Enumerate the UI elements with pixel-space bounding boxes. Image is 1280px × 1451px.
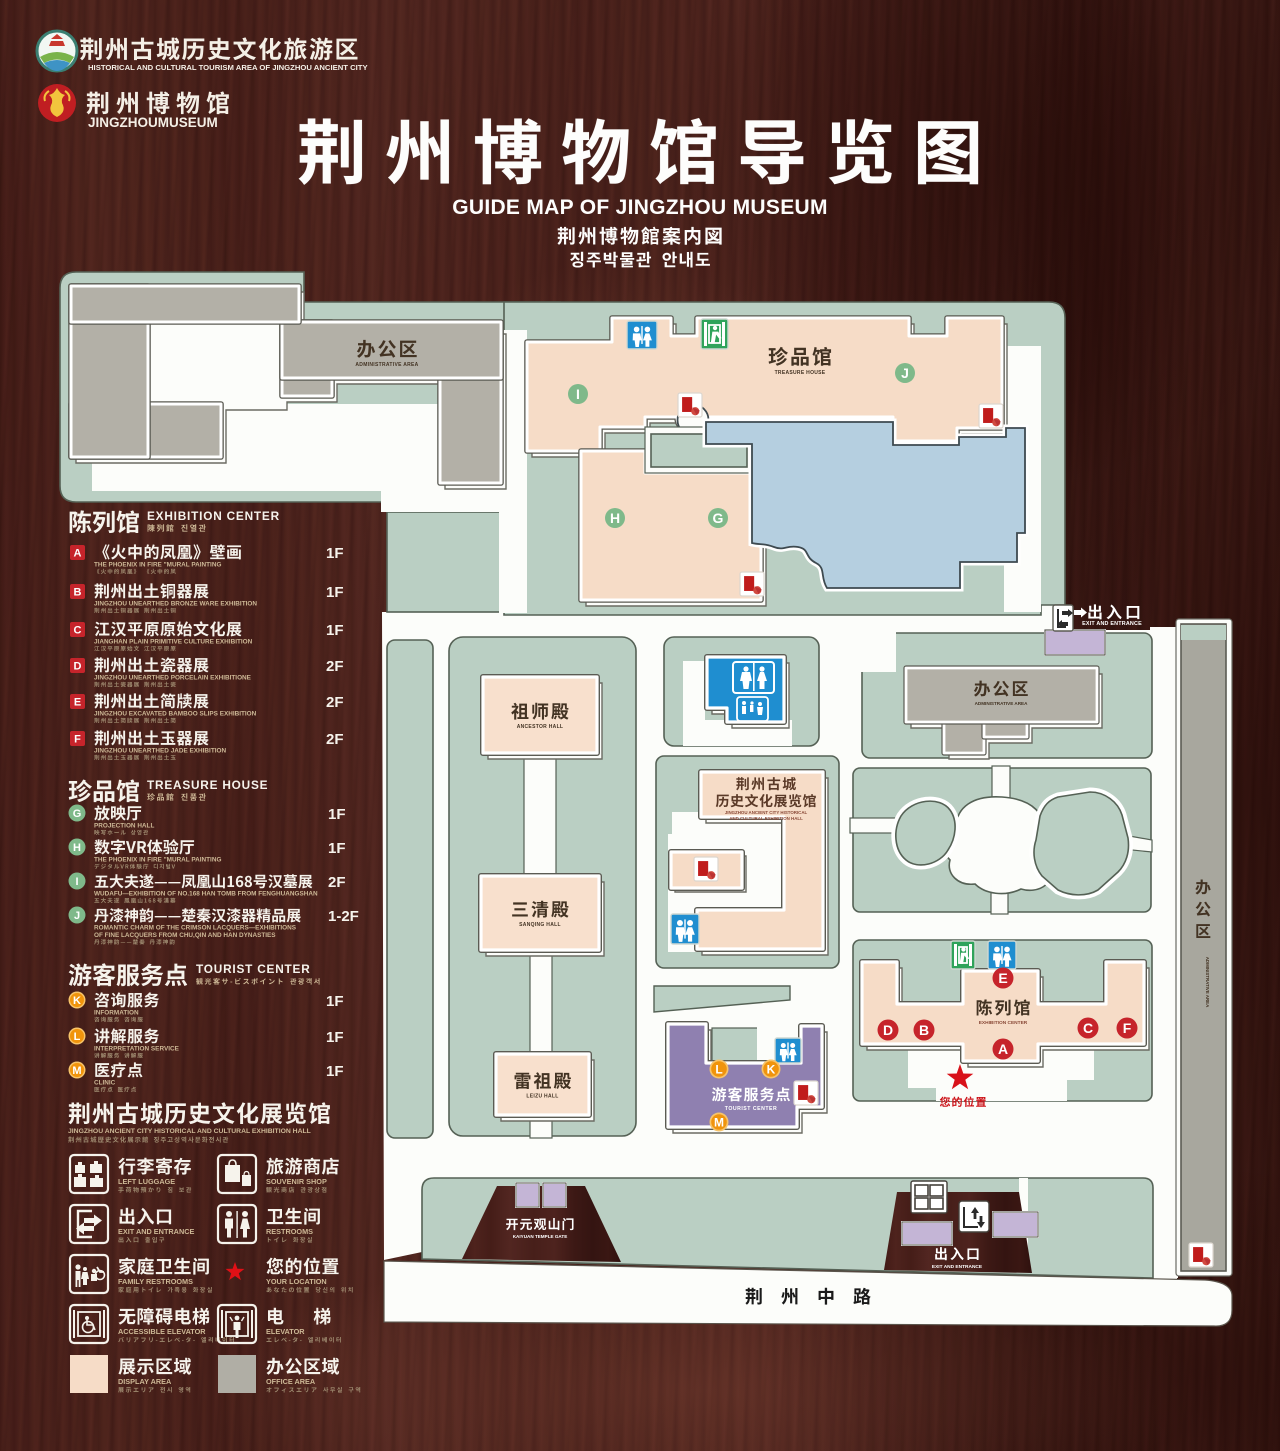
svg-text:ADMINISTRATIVE AREA: ADMINISTRATIVE AREA: [355, 362, 418, 368]
svg-text:WUDAFU—EXHIBITION OF NO.168 HA: WUDAFU—EXHIBITION OF NO.168 HAN TOMB FRO…: [94, 891, 318, 898]
svg-text:OF FINE LACQUERS FROM CHU,QIN: OF FINE LACQUERS FROM CHU,QIN AND HAN DY…: [94, 932, 276, 939]
svg-text:ANCESTOR HALL: ANCESTOR HALL: [517, 724, 564, 730]
svg-text:1F: 1F: [326, 1063, 344, 1080]
svg-text:ELEVATOR: ELEVATOR: [266, 1327, 305, 1336]
svg-text:LEIZU HALL: LEIZU HALL: [526, 1094, 558, 1100]
svg-text:DISPLAY AREA: DISPLAY AREA: [118, 1377, 172, 1386]
svg-text:LEFT LUGGAGE: LEFT LUGGAGE: [118, 1177, 175, 1186]
svg-text:EXHIBITION CENTER: EXHIBITION CENTER: [979, 1020, 1028, 1026]
svg-text:E: E: [998, 970, 1007, 986]
svg-text:H: H: [73, 842, 81, 854]
svg-text:I: I: [75, 876, 78, 888]
svg-text:JINGZHOU UNEARTHED PORCELAIN E: JINGZHOU UNEARTHED PORCELAIN EXHIBITIONE: [94, 675, 252, 682]
svg-text:1F: 1F: [328, 840, 346, 857]
svg-text:F: F: [74, 734, 81, 746]
svg-text:D: D: [883, 1022, 893, 1038]
svg-text:A: A: [74, 548, 82, 560]
svg-text:TOURIST CENTER: TOURIST CENTER: [196, 962, 311, 976]
svg-text:CLINIC: CLINIC: [94, 1080, 116, 1087]
svg-text:RESTROOMS: RESTROOMS: [266, 1227, 313, 1236]
svg-text:H: H: [610, 510, 620, 526]
svg-text:JINGZHOU UNEARTHED BRONZE WARE: JINGZHOU UNEARTHED BRONZE WARE EXHIBITIO…: [94, 601, 257, 608]
svg-text:G: G: [713, 510, 724, 526]
svg-text:1F: 1F: [326, 622, 344, 639]
svg-text:ADMINISTRATIVE AREA: ADMINISTRATIVE AREA: [975, 701, 1029, 706]
svg-text:INFORMATION: INFORMATION: [94, 1010, 139, 1017]
svg-text:1F: 1F: [326, 584, 344, 601]
svg-text:EXIT AND ENTRANCE: EXIT AND ENTRANCE: [932, 1264, 983, 1270]
svg-text:D: D: [74, 661, 82, 673]
svg-text:HISTORICAL AND CULTURAL TOURIS: HISTORICAL AND CULTURAL TOURISM AREA OF …: [88, 63, 368, 72]
svg-text:1-2F: 1-2F: [328, 908, 359, 925]
svg-text:2F: 2F: [328, 874, 346, 891]
svg-text:ADMINISTRATIVE AREA: ADMINISTRATIVE AREA: [1205, 957, 1210, 1008]
svg-text:I: I: [576, 386, 580, 402]
svg-text:TOURIST CENTER: TOURIST CENTER: [725, 1106, 777, 1112]
svg-text:AND CULTURAL EXHIBITION HALL: AND CULTURAL EXHIBITION HALL: [729, 816, 803, 821]
svg-text:JINGZHOU ANCIENT CITY HISTORIC: JINGZHOU ANCIENT CITY HISTORICAL: [725, 810, 808, 815]
svg-text:JINGZHOU EXCAVATED BAMBOO SLIP: JINGZHOU EXCAVATED BAMBOO SLIPS EXHIBITI…: [94, 711, 257, 718]
svg-text:K: K: [767, 1063, 776, 1077]
svg-text:SANQING HALL: SANQING HALL: [519, 922, 561, 928]
svg-text:B: B: [74, 587, 82, 599]
svg-text:ROMANTIC CHARM OF THE CRIMSON: ROMANTIC CHARM OF THE CRIMSON LACQUERS—E…: [94, 925, 297, 932]
svg-text:GUIDE MAP OF JINGZHOU MUSEUM: GUIDE MAP OF JINGZHOU MUSEUM: [452, 196, 828, 219]
svg-text:1F: 1F: [326, 993, 344, 1010]
svg-text:M: M: [72, 1065, 81, 1077]
svg-text:L: L: [715, 1063, 722, 1077]
svg-text:1F: 1F: [326, 1029, 344, 1046]
svg-text:J: J: [901, 365, 909, 381]
svg-text:M: M: [714, 1116, 724, 1130]
svg-text:JINGZHOUMUSEUM: JINGZHOUMUSEUM: [88, 115, 218, 130]
svg-text:THE PHOENIX IN FIRE "MURAL PAI: THE PHOENIX IN FIRE "MURAL PAINTING: [94, 857, 221, 864]
svg-text:1F: 1F: [326, 545, 344, 562]
svg-text:TREASURE HOUSE: TREASURE HOUSE: [147, 778, 268, 792]
svg-text:L: L: [74, 1031, 81, 1043]
svg-text:PROJECTION HALL: PROJECTION HALL: [94, 823, 154, 830]
svg-text:JIANGHAN PLAIN PRIMITIVE CULTU: JIANGHAN PLAIN PRIMITIVE CULTURE EXHIBIT…: [94, 639, 253, 646]
svg-text:EXIT AND ENTRANCE: EXIT AND ENTRANCE: [1082, 621, 1142, 627]
svg-text:YOUR LOCATION: YOUR LOCATION: [266, 1277, 327, 1286]
svg-text:2F: 2F: [326, 731, 344, 748]
svg-text:B: B: [919, 1022, 929, 1038]
svg-text:TREASURE HOUSE: TREASURE HOUSE: [775, 370, 826, 376]
svg-text:KAIYUAN TEMPLE GATE: KAIYUAN TEMPLE GATE: [513, 1234, 568, 1239]
svg-text:C: C: [74, 625, 82, 637]
svg-text:E: E: [74, 697, 81, 709]
svg-text:C: C: [1083, 1020, 1093, 1036]
svg-text:JINGZHOU ANCIENT CITY HISTORIC: JINGZHOU ANCIENT CITY HISTORICAL AND CUL…: [68, 1128, 311, 1135]
svg-text:1F: 1F: [328, 806, 346, 823]
svg-text:J: J: [74, 910, 80, 922]
svg-text:G: G: [73, 808, 82, 820]
svg-text:JINGZHOU UNEARTHED JADE EXHIBI: JINGZHOU UNEARTHED JADE EXHIBITION: [94, 748, 226, 755]
svg-text:EXHIBITION CENTER: EXHIBITION CENTER: [147, 509, 280, 523]
svg-text:EXIT AND ENTRANCE: EXIT AND ENTRANCE: [118, 1227, 194, 1236]
svg-text:SOUVENIR SHOP: SOUVENIR SHOP: [266, 1177, 327, 1186]
svg-text:A: A: [998, 1041, 1008, 1057]
svg-text:FAMILY RESTROOMS: FAMILY RESTROOMS: [118, 1277, 193, 1286]
svg-text:2F: 2F: [326, 694, 344, 711]
svg-text:F: F: [1123, 1020, 1132, 1036]
svg-text:INTERPRETATION SERVICE: INTERPRETATION SERVICE: [94, 1046, 180, 1053]
svg-text:THE PHOENIX IN FIRE "MURAL PAI: THE PHOENIX IN FIRE "MURAL PAINTING: [94, 562, 221, 569]
svg-text:2F: 2F: [326, 658, 344, 675]
svg-text:K: K: [73, 995, 81, 1007]
svg-text:ACCESSIBLE ELEVATOR: ACCESSIBLE ELEVATOR: [118, 1327, 206, 1336]
svg-text:OFFICE AREA: OFFICE AREA: [266, 1377, 316, 1386]
